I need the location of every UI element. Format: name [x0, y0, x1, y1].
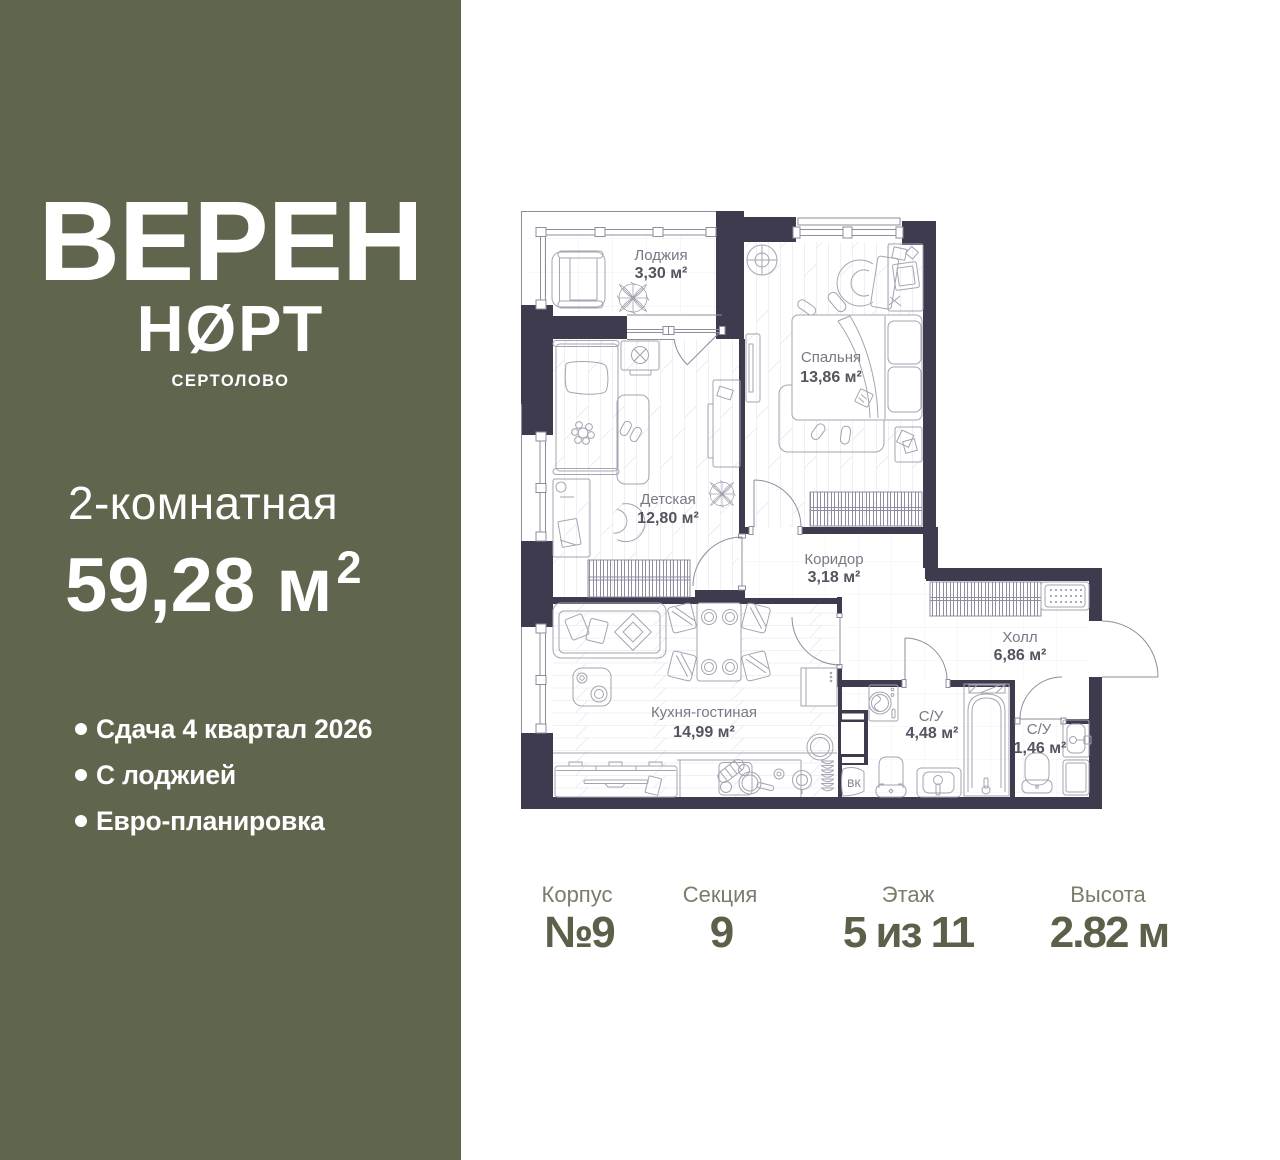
svg-text:Спальня: Спальня	[801, 349, 861, 366]
svg-text:12,80 м²: 12,80 м²	[637, 510, 699, 527]
svg-text:13,86 м²: 13,86 м²	[800, 369, 862, 386]
svg-text:4,48 м²: 4,48 м²	[906, 725, 959, 742]
svg-text:6,86 м²: 6,86 м²	[994, 647, 1047, 664]
svg-text:Кухня-гостиная: Кухня-гостиная	[651, 704, 757, 721]
svg-text:ВК: ВК	[847, 778, 861, 790]
svg-text:С/У: С/У	[1027, 721, 1052, 738]
svg-text:Холл: Холл	[1002, 629, 1037, 646]
svg-text:Лоджия: Лоджия	[634, 247, 687, 264]
svg-text:1,46 м²: 1,46 м²	[1014, 740, 1067, 757]
svg-text:Коридор: Коридор	[804, 551, 863, 568]
svg-text:С/У: С/У	[919, 708, 944, 725]
svg-text:3,30 м²: 3,30 м²	[635, 265, 688, 282]
svg-text:3,18 м²: 3,18 м²	[808, 569, 861, 586]
svg-text:Детская: Детская	[640, 491, 696, 508]
svg-text:14,99 м²: 14,99 м²	[673, 724, 735, 741]
